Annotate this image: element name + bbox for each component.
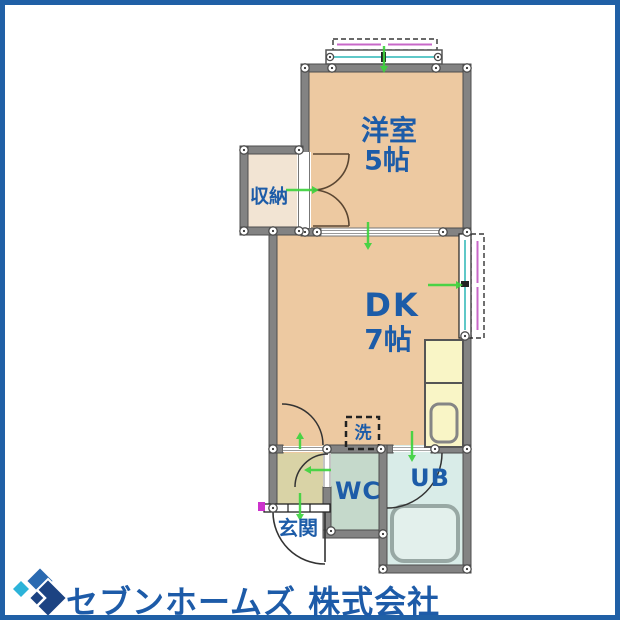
wc-label: WC xyxy=(335,479,381,503)
dk-size: 7帖 xyxy=(364,326,411,354)
washer-label: 洗 xyxy=(355,426,372,443)
company-logo-icon xyxy=(13,567,67,617)
western-room-label: 洋室 xyxy=(361,117,417,145)
kitchen-sink xyxy=(431,404,457,442)
door-sensor-marker xyxy=(258,502,265,511)
kitchen-counter xyxy=(425,340,463,447)
bathtub xyxy=(392,506,458,561)
western-room-size: 5帖 xyxy=(364,148,410,175)
window-right xyxy=(459,234,484,338)
dk-label: DK xyxy=(364,289,419,321)
bath-label: UB xyxy=(410,466,450,490)
entrance-label: 玄関 xyxy=(278,518,318,538)
sliding-partition xyxy=(321,228,441,236)
company-name: セブンホームズ 株式会社 xyxy=(66,586,440,618)
floorplan-page: 洋室 5帖 DK 7帖 収納 洗 WC UB 玄関 セブンホームズ 株式会社 xyxy=(0,0,620,620)
closet-label: 収納 xyxy=(250,188,288,207)
